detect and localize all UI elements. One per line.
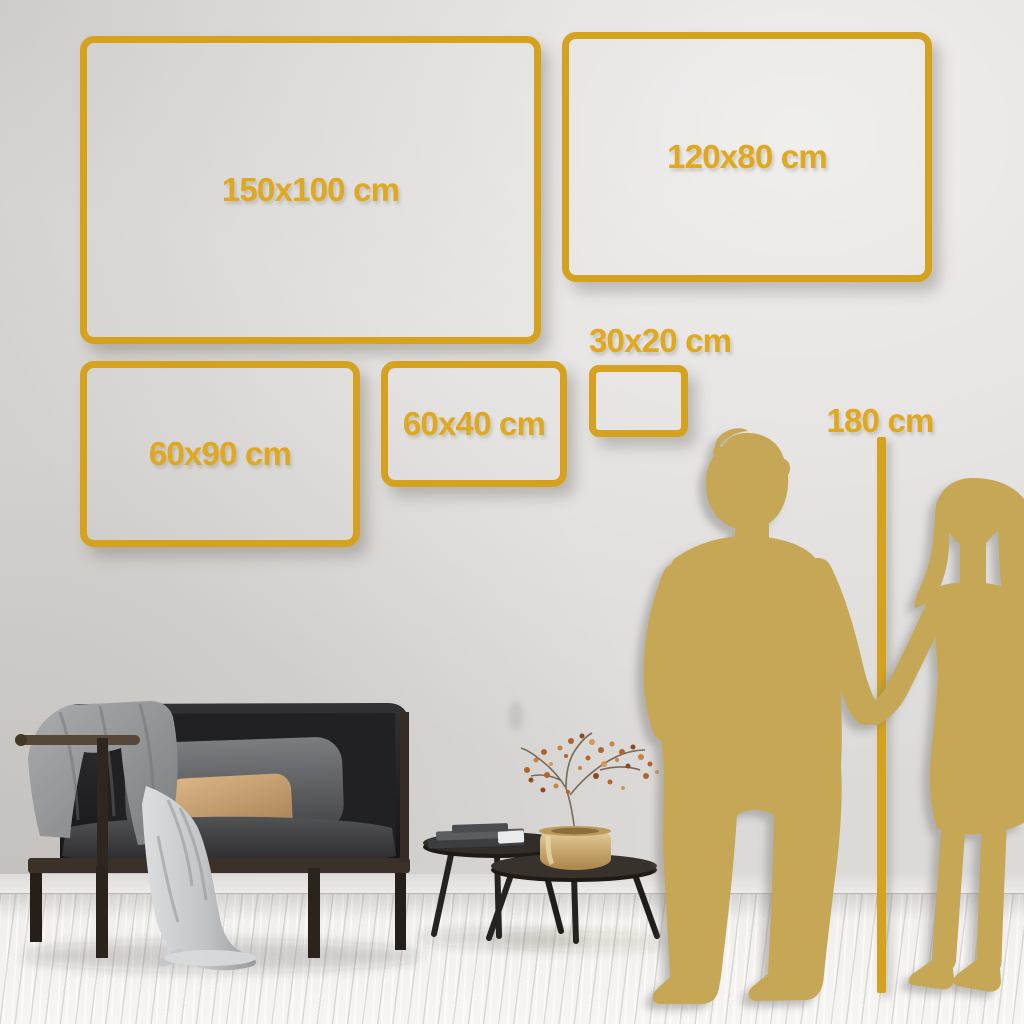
canvas-size-guide-scene: 150x100 cm 120x80 cm 60x90 cm 60x40 cm 3… [0, 0, 1024, 1024]
couple-silhouette [0, 0, 1024, 1024]
man-silhouette [653, 428, 879, 1004]
woman-silhouette [864, 478, 1024, 992]
